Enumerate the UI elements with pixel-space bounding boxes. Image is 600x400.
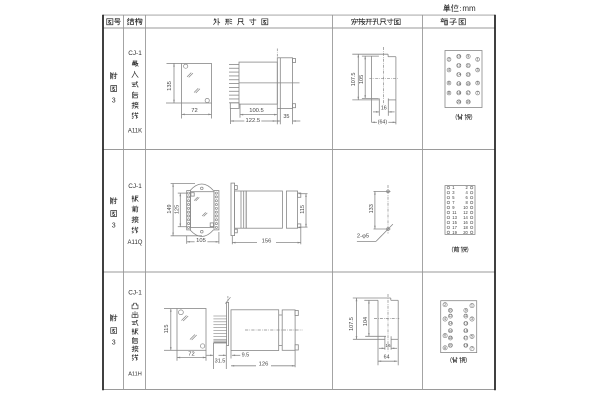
svg-text:5: 5 <box>471 335 473 339</box>
svg-text:4: 4 <box>444 317 446 321</box>
svg-text:18: 18 <box>457 91 461 95</box>
svg-text:107.5: 107.5 <box>351 73 357 87</box>
svg-text:115: 115 <box>300 205 306 214</box>
svg-text:6: 6 <box>444 334 446 338</box>
svg-text:): ) <box>470 114 472 121</box>
svg-text:135: 135 <box>167 81 173 91</box>
svg-text:A11H: A11H <box>128 371 142 377</box>
svg-text:3: 3 <box>112 98 116 105</box>
svg-text:20: 20 <box>463 230 468 235</box>
svg-text:1: 1 <box>477 58 479 62</box>
svg-text:4: 4 <box>448 68 450 72</box>
svg-text:72: 72 <box>191 108 197 114</box>
svg-text:3: 3 <box>477 68 479 72</box>
svg-text:2: 2 <box>448 58 450 62</box>
svg-text:11: 11 <box>464 314 468 318</box>
svg-text:15: 15 <box>466 82 470 86</box>
svg-text:31.5: 31.5 <box>215 359 226 365</box>
svg-text:18: 18 <box>449 336 453 340</box>
svg-text:(64): (64) <box>378 119 388 125</box>
svg-text:107.5: 107.5 <box>349 317 355 331</box>
svg-text:7: 7 <box>477 91 479 95</box>
svg-text:16: 16 <box>449 329 453 333</box>
svg-text:3: 3 <box>471 317 473 321</box>
svg-text:100.5: 100.5 <box>249 108 264 114</box>
svg-text:10: 10 <box>457 55 461 59</box>
svg-text:17: 17 <box>464 336 468 340</box>
svg-text:A11K: A11K <box>128 129 142 135</box>
svg-text:8: 8 <box>444 346 446 350</box>
svg-text:17: 17 <box>466 91 470 95</box>
svg-text:A11Q: A11Q <box>128 240 143 246</box>
svg-text:104: 104 <box>363 317 369 326</box>
svg-text:19: 19 <box>466 100 470 104</box>
svg-text:35: 35 <box>283 114 289 120</box>
svg-text:133: 133 <box>369 204 375 213</box>
svg-text:14: 14 <box>449 322 453 326</box>
svg-text:2-φ5: 2-φ5 <box>357 233 369 239</box>
svg-text:20: 20 <box>449 343 453 347</box>
svg-text:72: 72 <box>188 351 194 357</box>
svg-text:CJ-1: CJ-1 <box>128 50 142 57</box>
svg-text:3: 3 <box>112 223 116 230</box>
svg-text:105: 105 <box>359 75 365 84</box>
svg-text:CJ-1: CJ-1 <box>128 290 142 297</box>
svg-text:19: 19 <box>464 343 468 347</box>
svg-text:126: 126 <box>259 362 269 368</box>
svg-text:12: 12 <box>457 64 461 68</box>
svg-text:16: 16 <box>385 343 391 348</box>
svg-text:): ) <box>465 357 467 364</box>
svg-text:13: 13 <box>464 322 468 326</box>
svg-text:3: 3 <box>112 340 116 347</box>
svg-text:105: 105 <box>196 238 206 244</box>
svg-text:20: 20 <box>457 100 461 104</box>
svg-text:14: 14 <box>457 73 461 77</box>
svg-text:): ) <box>467 246 469 253</box>
svg-text:10: 10 <box>449 309 453 313</box>
svg-text:16: 16 <box>381 106 387 112</box>
svg-text:11: 11 <box>466 64 470 68</box>
svg-text:5: 5 <box>477 81 479 85</box>
svg-text:15: 15 <box>464 329 468 333</box>
svg-text:64: 64 <box>384 354 390 360</box>
svg-text:115: 115 <box>164 325 170 334</box>
svg-text:149: 149 <box>167 204 173 213</box>
svg-text:CJ-1: CJ-1 <box>128 183 142 190</box>
svg-text:12: 12 <box>449 314 453 318</box>
svg-text::: : <box>459 4 461 13</box>
svg-text:122.5: 122.5 <box>246 118 261 124</box>
svg-text:9.5: 9.5 <box>242 352 250 358</box>
svg-text:6: 6 <box>448 81 450 85</box>
svg-text:13: 13 <box>466 73 470 77</box>
svg-text:7: 7 <box>471 347 473 351</box>
svg-text:156: 156 <box>262 238 272 244</box>
svg-text:16: 16 <box>457 82 461 86</box>
svg-text:9: 9 <box>465 309 467 313</box>
svg-text:19: 19 <box>452 230 457 235</box>
svg-text:1: 1 <box>471 304 473 308</box>
svg-text:8: 8 <box>448 91 450 95</box>
svg-text:125: 125 <box>174 205 180 214</box>
svg-text:mm: mm <box>462 4 476 13</box>
svg-text:9: 9 <box>467 55 469 59</box>
svg-text:2: 2 <box>444 303 446 307</box>
